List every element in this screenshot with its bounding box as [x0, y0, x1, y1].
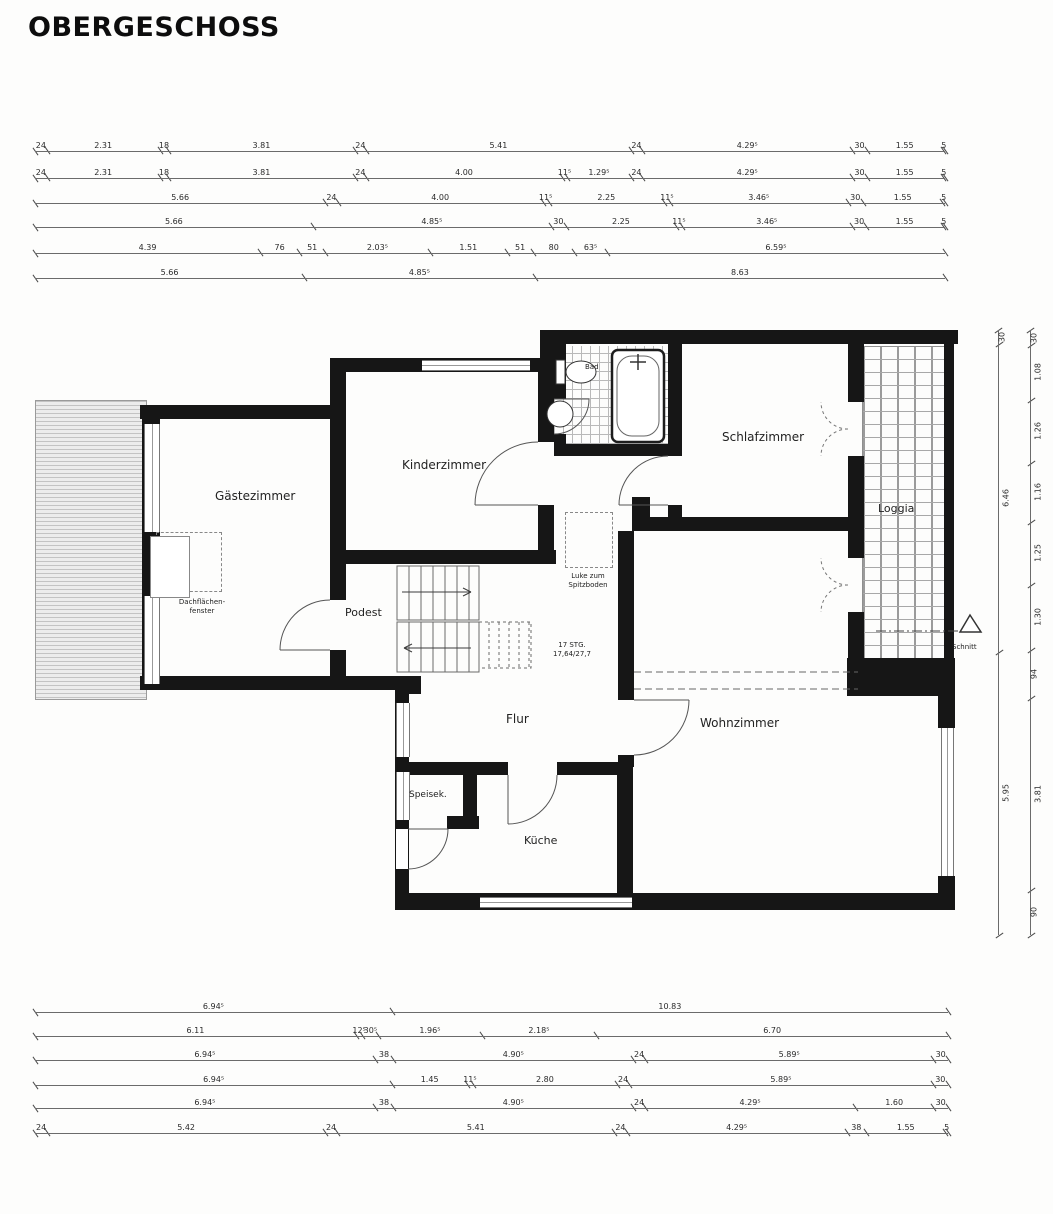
dim-segment: 4.90⁵: [393, 1046, 633, 1061]
annotation-line: Spitzboden: [552, 581, 624, 590]
door-arc-speisekammer: [408, 829, 448, 869]
annotation-roof-window: Dachflächen- fenster: [162, 598, 242, 616]
toilet-tank: [556, 360, 565, 384]
room-label-loggia: Loggia: [878, 502, 914, 515]
annotation-line: 17,64/27,7: [536, 650, 608, 659]
dim-segment: 24: [633, 1094, 645, 1109]
dim-segment: 38: [847, 1119, 866, 1134]
loggia-door-leaf: [821, 402, 848, 429]
annotation-schnitt: Schnitt: [952, 643, 977, 651]
dim-label: 5.42: [177, 1123, 195, 1132]
dim-segment: 1.60: [855, 1094, 933, 1109]
dim-label: 30: [1030, 332, 1039, 342]
dimension-chain-bottom-5: 6.94⁵384.90⁵244.29⁵1.6030: [35, 1095, 948, 1109]
dim-label: 24: [36, 1123, 46, 1132]
room-label-podest: Podest: [345, 606, 382, 619]
dim-segment: 24: [325, 1119, 337, 1134]
dimension-chain-right-outer: 301.081.261.161.251.30943.8190: [1030, 330, 1044, 935]
dim-label: 6.46: [1001, 489, 1010, 507]
dim-label: 30: [936, 1050, 946, 1059]
dimension-chain-bottom-4: 6.94⁵1.4511⁵2.80245.89⁵30: [35, 1072, 948, 1086]
dim-segment: 1.26: [1030, 400, 1045, 464]
dim-segment: 4.29⁵: [627, 1119, 847, 1134]
dim-label: 24: [618, 1075, 628, 1084]
dim-segment: 6.94⁵: [35, 1094, 375, 1109]
dim-segment: 24: [617, 1071, 629, 1086]
dim-label: 1.16: [1033, 483, 1042, 501]
dim-segment: 5.89⁵: [645, 1046, 933, 1061]
dim-label: 6.94⁵: [203, 1002, 224, 1011]
dim-label: 24: [634, 1050, 644, 1059]
loggia-double-doors: [821, 402, 848, 612]
dim-segment: 2.80: [473, 1071, 617, 1086]
dim-label: 38: [379, 1098, 389, 1107]
dim-label: 5.89⁵: [779, 1050, 800, 1059]
dim-segment: 6.94⁵: [35, 1071, 392, 1086]
dim-segment: 6.70: [596, 1022, 948, 1037]
dim-label: 1.55: [897, 1123, 915, 1132]
dim-segment: 30: [1030, 330, 1045, 345]
dim-label: 1.25: [1033, 544, 1042, 562]
annotation-line: Luke zum: [552, 572, 624, 581]
dim-segment: 5.41: [337, 1119, 614, 1134]
dim-label: 30: [936, 1098, 946, 1107]
annotation-line: Dachflächen-: [162, 598, 242, 607]
dim-segment: 1.55: [866, 1119, 945, 1134]
stair-hidden-treads: [479, 622, 531, 668]
stair-treads: [409, 622, 469, 672]
dim-label: 6.94⁵: [194, 1098, 215, 1107]
room-label-speisekammer: Speisek.: [409, 790, 447, 800]
door-arc-kinderzimmer: [475, 442, 538, 505]
dim-segment: 24: [35, 1119, 47, 1134]
dim-label: 1.45: [421, 1075, 439, 1084]
dim-segment: 90: [1030, 890, 1045, 935]
roof-slope-dashed-lines: [634, 672, 858, 689]
room-label-gaestezimmer: Gästezimmer: [215, 489, 295, 503]
dim-label: 10.83: [658, 1002, 681, 1011]
dim-segment: 5: [945, 1119, 948, 1134]
stair-direction-arrow-up: [402, 588, 471, 596]
dim-label: 5: [944, 1123, 949, 1132]
dim-label: 38: [379, 1050, 389, 1059]
room-label-kueche: Küche: [524, 834, 557, 847]
stair-direction-arrow-down: [404, 644, 471, 652]
section-marker-triangle: [960, 615, 981, 632]
dim-label: 1.60: [885, 1098, 903, 1107]
dim-segment: 1.25: [1030, 522, 1045, 585]
dim-label: 5.41: [467, 1123, 485, 1132]
dimension-chain-right-inner: 306.465.95: [998, 330, 1012, 935]
dim-label: 38: [851, 1123, 861, 1132]
dim-segment: 4.29⁵: [645, 1094, 855, 1109]
annotation-line: 17 STG.: [536, 641, 608, 650]
room-label-kinderzimmer: Kinderzimmer: [402, 458, 486, 472]
dim-label: 30⁵: [364, 1026, 377, 1035]
dim-segment: 30⁵: [362, 1022, 378, 1037]
dim-label: 4.90⁵: [503, 1050, 524, 1059]
dim-segment: 30: [933, 1046, 948, 1061]
loggia-door-leaf: [821, 558, 848, 585]
dim-label: 5.95: [1001, 784, 1010, 802]
dim-label: 6.94⁵: [203, 1075, 224, 1084]
dimension-chain-bottom-3: 6.94⁵384.90⁵245.89⁵30: [35, 1047, 948, 1061]
bathroom-fixtures: [547, 350, 664, 442]
dim-label: 4.90⁵: [503, 1098, 524, 1107]
dim-segment: 5.42: [47, 1119, 325, 1134]
dim-label: 4.29⁵: [726, 1123, 747, 1132]
door-arc-gaestezimmer: [280, 600, 330, 650]
dim-label: 2.18⁵: [528, 1026, 549, 1035]
dim-label: 6.11: [186, 1026, 204, 1035]
dim-segment: 3.81: [1030, 698, 1045, 890]
dimension-chain-bottom-2: 6.1112⁵30⁵1.96⁵2.18⁵6.70: [35, 1023, 948, 1037]
stair-treads: [409, 566, 469, 620]
dim-segment: 30: [998, 330, 1013, 344]
dim-label: 30: [935, 1075, 945, 1084]
door-arc-kueche: [508, 775, 557, 824]
room-label-schlafzimmer: Schlafzimmer: [722, 430, 804, 444]
loggia-door-leaf: [821, 429, 848, 456]
annotation-attic-hatch: Luke zum Spitzboden: [552, 572, 624, 590]
dim-label: 94: [1030, 669, 1039, 679]
dim-segment: 6.94⁵: [35, 1046, 375, 1061]
dim-segment: 6.94⁵: [35, 998, 392, 1013]
loggia-door-leaf: [821, 585, 848, 612]
dim-segment: 5.89⁵: [629, 1071, 932, 1086]
dim-segment: 1.45: [392, 1071, 467, 1086]
dim-segment: 30: [933, 1094, 948, 1109]
dim-segment: 30: [933, 1071, 948, 1086]
dim-segment: 38: [375, 1046, 394, 1061]
annotation-line: fenster: [162, 607, 242, 616]
dim-label: 30: [998, 332, 1007, 342]
dim-label: 1.30: [1033, 608, 1042, 626]
dim-segment: 6.46: [998, 344, 1013, 652]
dim-label: 24: [634, 1098, 644, 1107]
staircase: [397, 566, 531, 672]
dim-segment: 1.30: [1030, 585, 1045, 651]
dim-label: 4.29⁵: [740, 1098, 761, 1107]
annotation-stairs-spec: 17 STG. 17,64/27,7: [536, 641, 608, 659]
dim-segment: 2.18⁵: [482, 1022, 597, 1037]
dim-label: 24: [615, 1123, 625, 1132]
dim-label: 2.80: [536, 1075, 554, 1084]
dim-label: 1.96⁵: [419, 1026, 440, 1035]
dim-segment: 38: [375, 1094, 394, 1109]
room-label-bad: Bad: [585, 363, 599, 371]
dim-segment: 1.16: [1030, 463, 1045, 521]
dim-label: 3.81: [1033, 785, 1042, 803]
room-label-wohnzimmer: Wohnzimmer: [700, 716, 779, 730]
room-label-flur: Flur: [506, 712, 529, 726]
dim-label: 90: [1030, 907, 1039, 917]
dimension-chain-bottom-1: 6.94⁵10.83: [35, 999, 948, 1013]
dim-segment: 5.95: [998, 652, 1013, 935]
door-arc-schlafzimmer: [619, 456, 668, 505]
dim-label: 6.94⁵: [194, 1050, 215, 1059]
dimension-chain-bottom-6: 245.42245.41244.29⁵381.555: [35, 1120, 948, 1134]
dim-segment: 94: [1030, 650, 1045, 697]
dim-segment: 6.11: [35, 1022, 356, 1037]
dim-label: 1.08: [1033, 363, 1042, 381]
dim-segment: 4.90⁵: [393, 1094, 633, 1109]
dim-segment: 24: [614, 1119, 626, 1134]
dim-segment: 1.96⁵: [378, 1022, 481, 1037]
dim-label: 24: [326, 1123, 336, 1132]
sink-icon: [547, 401, 573, 427]
dim-segment: 10.83: [392, 998, 948, 1013]
dim-segment: 24: [633, 1046, 645, 1061]
dim-label: 5.89⁵: [770, 1075, 791, 1084]
dim-label: 6.70: [763, 1026, 781, 1035]
dim-segment: 1.08: [1030, 345, 1045, 399]
dim-label: 1.26: [1033, 422, 1042, 440]
door-arc-wohnzimmer: [634, 700, 689, 755]
